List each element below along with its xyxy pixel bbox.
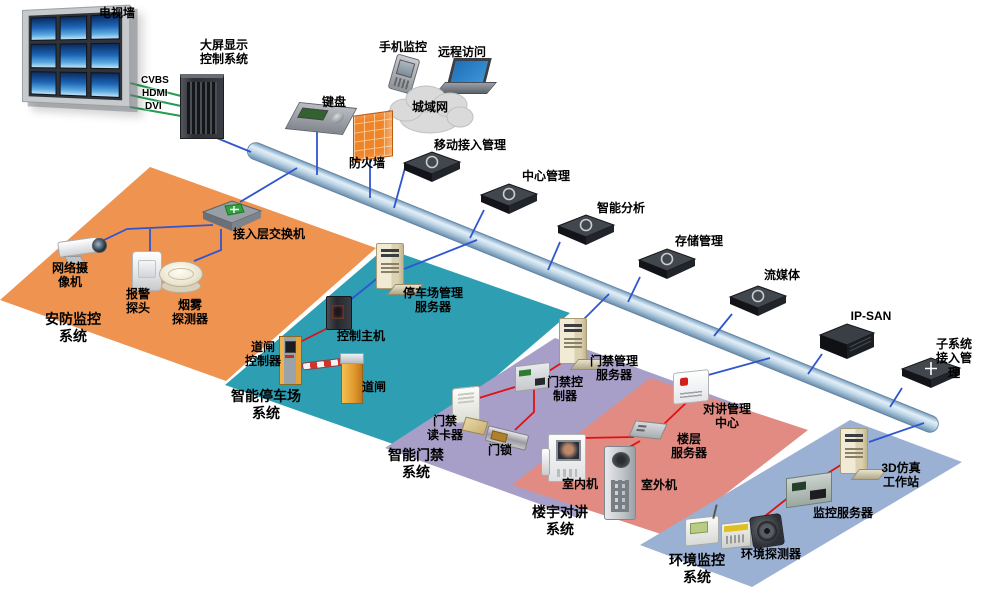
- label-monitor-server: 监控服务器: [813, 506, 873, 520]
- topology-diagram: 电视墙 大屏显示 控制系统 CVBS HDMI DVI 键盘 手机监控 远程访问…: [0, 0, 1000, 590]
- indoor-unit: [548, 434, 586, 482]
- link-floorserver-indoor: [582, 437, 634, 438]
- center-mgmt-server: [479, 182, 539, 216]
- label-control-host: 控制主机: [337, 329, 385, 343]
- label-cvbs: CVBS: [141, 75, 169, 87]
- link-intercom-center-backbone: [701, 358, 770, 377]
- intelligent-analysis-server: [556, 213, 616, 247]
- label-door-lock: 门锁: [488, 443, 512, 457]
- label-storage-mgmt: 存储管理: [675, 234, 723, 248]
- label-indoor-unit: 室内机: [562, 477, 598, 491]
- label-card-reader: 门禁 读卡器: [427, 414, 463, 443]
- link-switch-backbone: [240, 168, 297, 202]
- env-box: [721, 520, 751, 549]
- label-parking-server: 停车场管理 服务器: [403, 286, 463, 315]
- label-zone-intercom: 楼宇对讲 系统: [532, 504, 588, 538]
- label-intel-analysis: 智能分析: [597, 201, 645, 215]
- label-barrier-ctrl: 道闸 控制器: [245, 340, 281, 369]
- floor-server-box: [628, 420, 667, 439]
- mobile-access-server: [402, 150, 462, 184]
- outdoor-unit: [604, 446, 636, 520]
- smoke-detector: [159, 261, 203, 293]
- label-intercom-center: 对讲管理 中心: [703, 402, 751, 431]
- intercom-center-panel: [673, 369, 709, 405]
- label-alarm-probe: 报警 探头: [126, 287, 150, 316]
- label-zone-access: 智能门禁 系统: [388, 447, 444, 481]
- tv-wall-screens: [29, 12, 122, 101]
- env-meter: [685, 515, 719, 547]
- barrier-controller-kiosk: [279, 336, 302, 385]
- label-firewall: 防火墙: [349, 156, 385, 170]
- label-mobile-access: 移动接入管理: [434, 138, 506, 152]
- display-control-chassis: [180, 74, 224, 139]
- label-door-ctrl: 门禁控 制器: [547, 375, 583, 404]
- label-door-server: 门禁管理 服务器: [590, 354, 638, 383]
- label-metro-network: 城域网: [412, 100, 448, 114]
- label-center-mgmt: 中心管理: [522, 169, 570, 183]
- label-zone-security: 安防监控 系统: [45, 311, 101, 345]
- label-net-camera: 网络摄 像机: [52, 261, 88, 290]
- label-access-switch: 接入层交换机: [233, 227, 305, 241]
- label-zone-parking: 智能停车场 系统: [231, 388, 301, 422]
- door-controller-board: [515, 362, 550, 392]
- label-display-control: 大屏显示 控制系统: [200, 38, 248, 67]
- ip-san-storage: [818, 320, 876, 362]
- label-keyboard: 键盘: [322, 95, 346, 109]
- label-ip-san: IP-SAN: [851, 309, 892, 323]
- control-host: [326, 296, 352, 330]
- storage-mgmt-server: [637, 247, 697, 281]
- sim3d-workstation-tower: [840, 428, 884, 480]
- label-subsys-access: 子系统接入管理: [931, 337, 977, 380]
- label-outdoor-unit: 室外机: [641, 478, 677, 492]
- label-dvi: DVI: [145, 101, 162, 113]
- label-stream-media: 流媒体: [764, 268, 800, 282]
- alarm-detector: [132, 251, 162, 291]
- network-camera: [58, 232, 110, 264]
- label-barrier: 道闸: [362, 380, 386, 394]
- label-remote-access: 远程访问: [438, 45, 486, 59]
- label-zone-environment: 环境监控 系统: [669, 552, 725, 586]
- label-sim3d: 3D仿真 工作站: [881, 461, 920, 490]
- barrier-gate-post: [341, 356, 363, 404]
- label-env-detector: 环境探测器: [741, 547, 801, 561]
- env-fan: [749, 513, 785, 549]
- label-smoke-detector: 烟雾 探测器: [172, 298, 208, 327]
- label-tv-wall: 电视墙: [99, 6, 135, 20]
- label-floor-server: 楼层 服务器: [671, 432, 707, 461]
- label-hdmi: HDMI: [142, 88, 168, 100]
- streaming-media-server: [728, 284, 788, 318]
- firewall-icon: [353, 110, 393, 162]
- label-phone-monitor: 手机监控: [379, 40, 427, 54]
